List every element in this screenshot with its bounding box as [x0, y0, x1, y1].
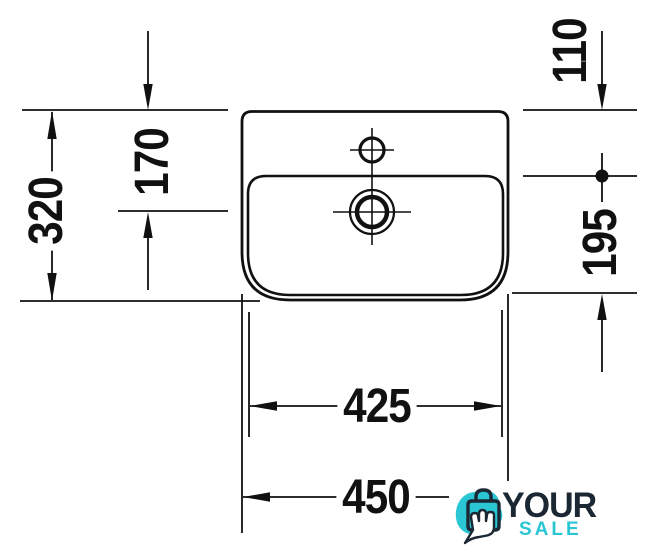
dimension-label-450: 450	[336, 475, 415, 519]
arrowhead-110	[597, 84, 606, 110]
arrowhead-425-right	[474, 401, 501, 410]
arrowhead-320-top	[47, 111, 56, 139]
dimension-label-170: 170	[129, 124, 175, 200]
reference-dot	[596, 170, 609, 183]
logo-text-block: YOUR SALE	[502, 491, 599, 539]
technical-drawing-canvas: 320 170 110 195 425 450 YOUR SALE	[0, 0, 655, 552]
basin-inner-outline	[248, 176, 503, 295]
arrowhead-425-left	[250, 401, 277, 410]
arrowhead-170-bottom	[143, 212, 152, 238]
arrowhead-450-left	[243, 492, 270, 501]
dimension-label-425: 425	[337, 384, 416, 428]
dimension-label-320: 320	[23, 171, 69, 250]
arrowhead-320-bottom	[47, 273, 56, 301]
yoursale-logo: YOUR SALE	[449, 481, 650, 549]
arrowhead-195	[597, 294, 606, 320]
dimension-label-110: 110	[548, 15, 592, 87]
logo-your-label: YOUR	[502, 491, 596, 521]
dimension-label-195: 195	[578, 207, 622, 279]
arrowhead-170-top	[143, 84, 152, 110]
